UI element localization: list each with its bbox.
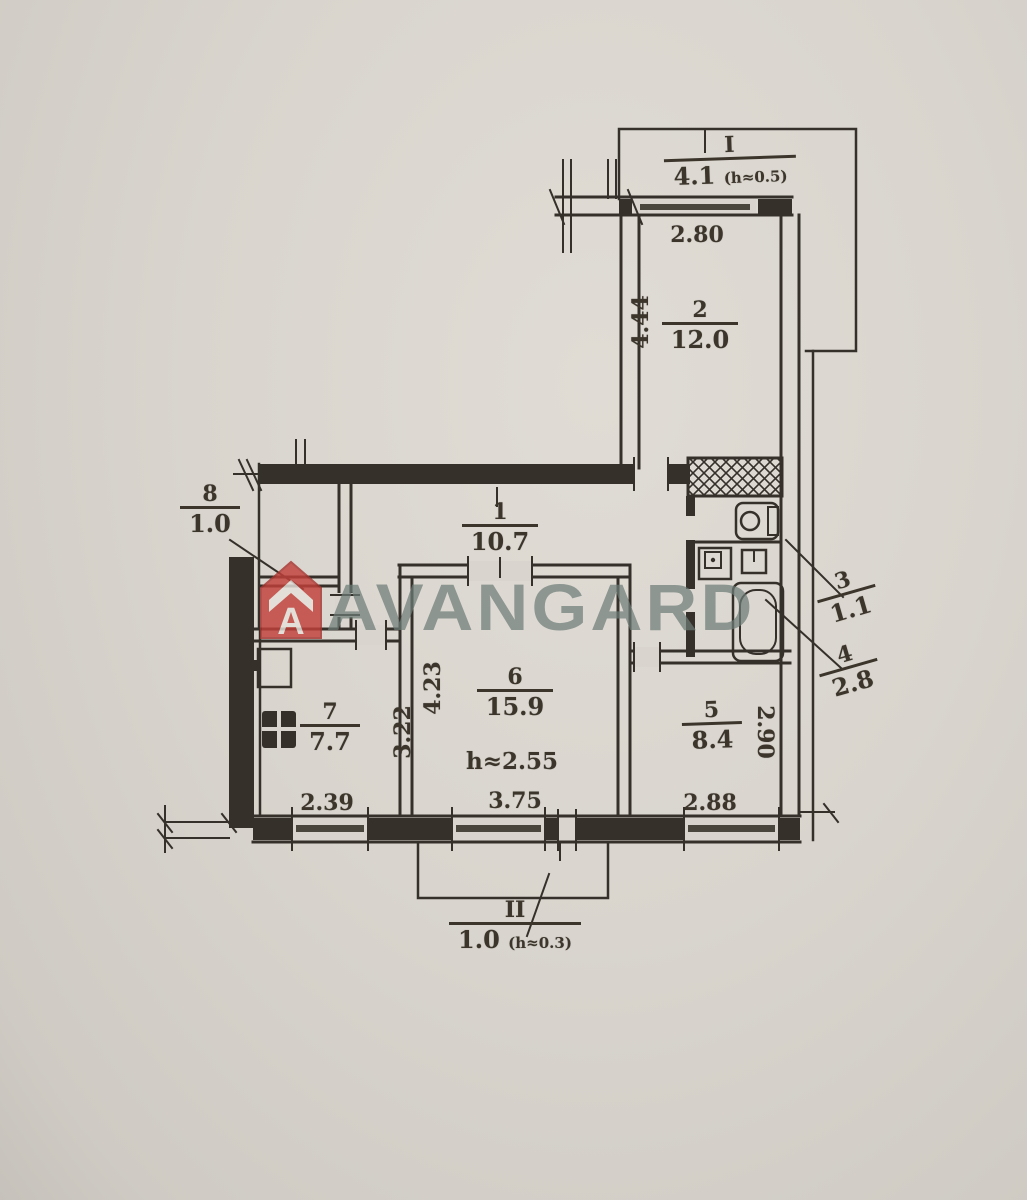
room-number: 2 (650, 298, 750, 322)
svg-text:A: A (277, 601, 304, 642)
room-number: 6 (465, 665, 565, 689)
room-label-6-living: 6 15.9 (465, 665, 565, 721)
balcony-height-note: (h≈0.3) (508, 934, 572, 952)
room-area: 12.0 (662, 322, 738, 353)
room-number: 7 (280, 700, 380, 724)
room-number: 8 (170, 482, 250, 506)
room-label-2: 2 12.0 (650, 298, 750, 354)
dim-top-window: 2.80 (647, 222, 747, 248)
avangard-logo-icon: A (254, 558, 328, 642)
room-label-7-kitchen: 7 7.7 (280, 700, 380, 756)
room-label-8-closet: 8 1.0 (170, 482, 250, 538)
washbasin-icon (742, 550, 766, 573)
vent-shaft-hatch (688, 458, 782, 496)
room-label-5: 5 8.4 (661, 696, 763, 755)
dim-room6-width: 3.75 (465, 788, 565, 814)
balcony-height-note: (h≈0.5) (723, 167, 787, 187)
room-number: 5 (661, 696, 762, 724)
balcony-area: 1.0 (458, 925, 500, 954)
room-area: 15.9 (477, 689, 553, 720)
kitchen-sink-icon (251, 649, 291, 687)
room-label-1-corridor: 1 10.7 (450, 500, 550, 556)
balcony-number: II (440, 898, 590, 922)
dim-room7-depth: 3.22 (390, 692, 416, 772)
room-number: 1 (450, 500, 550, 524)
balcony-top-label: I 4.1 (h≈0.5) (644, 130, 816, 191)
dim-room5-width: 2.88 (660, 790, 760, 816)
room-area: 1.0 (180, 506, 240, 537)
floor-plan-photo: I 4.1 (h≈0.5) 2.80 2 12.0 4.44 1 10.7 8 … (0, 0, 1027, 1200)
dim-room2-depth: 4.44 (628, 282, 654, 362)
room-area: 10.7 (462, 524, 538, 555)
toilet-icon (736, 503, 778, 539)
balcony-area: 4.1 (673, 161, 716, 191)
dim-room6-depth: 4.23 (420, 648, 446, 728)
room-area: 7.7 (300, 724, 360, 755)
dim-room5-depth: 2.90 (752, 692, 778, 772)
dim-room7-width: 2.39 (277, 790, 377, 816)
room-area: 8.4 (682, 721, 743, 754)
balcony-bottom-label: II 1.0 (h≈0.3) (440, 898, 590, 954)
watermark-brand-text: AVANGARD (326, 575, 755, 641)
ceiling-height-note: h≈2.55 (452, 748, 572, 775)
